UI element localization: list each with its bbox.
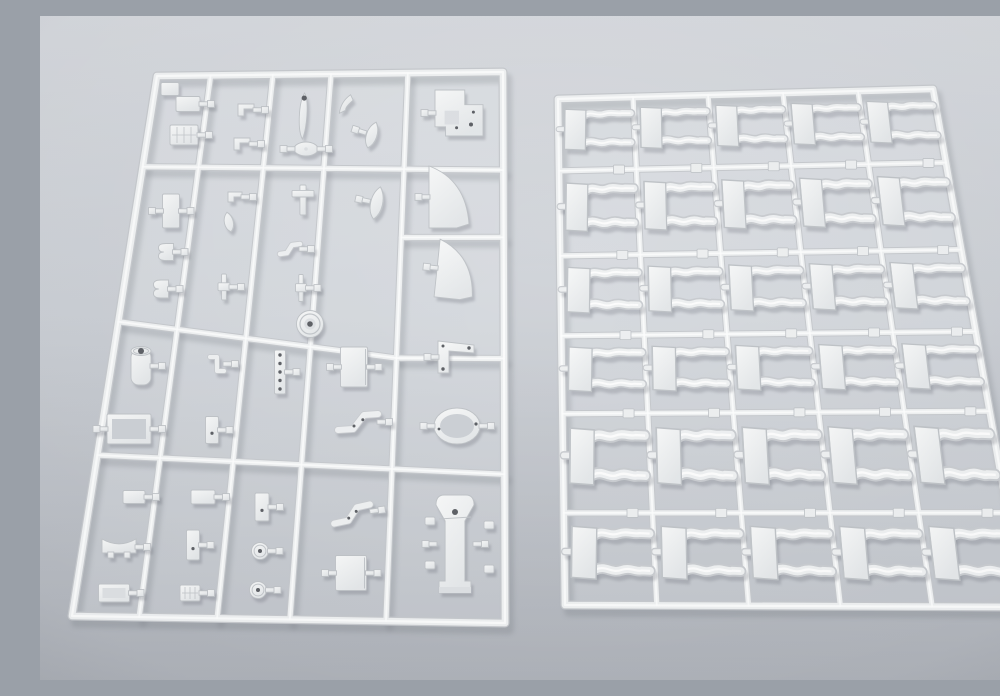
- sprue-scene: [40, 16, 1000, 680]
- sprue-product-photo: [40, 16, 1000, 680]
- vignette: [40, 16, 1000, 680]
